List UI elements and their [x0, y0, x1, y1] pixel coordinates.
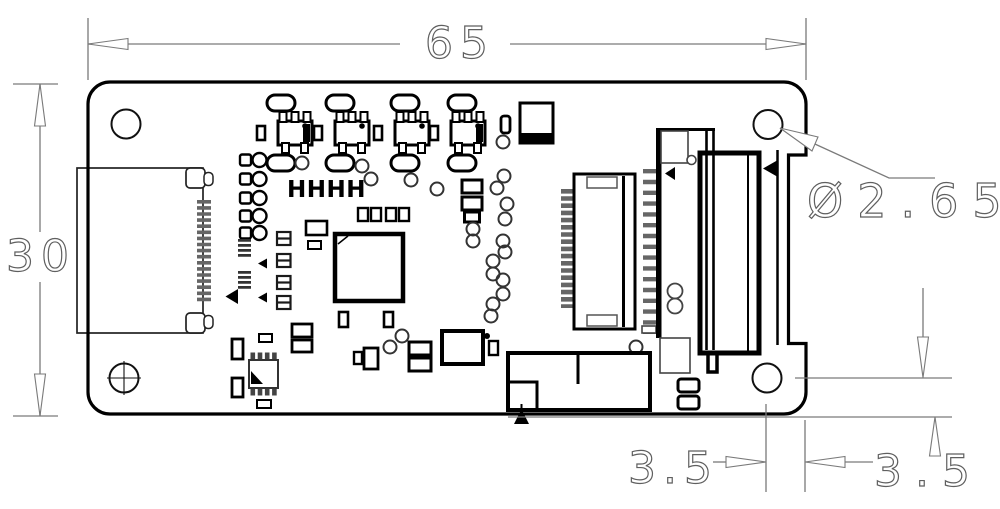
- pcb-dimension-drawing: HHHH: [0, 0, 1000, 509]
- dim-height-value: 30: [6, 231, 76, 282]
- main-ic: [335, 234, 403, 327]
- dim-hole-diameter: Ø2.65: [780, 128, 1000, 228]
- silkscreen-text: HHHH: [287, 177, 366, 203]
- led-column: [240, 153, 267, 240]
- vertical-fpc-connector: [642, 128, 715, 373]
- ffc-connector: [568, 174, 635, 329]
- dim-hole-diameter-value: Ø2.65: [807, 174, 1000, 228]
- mounting-hole-top-right: [754, 110, 783, 139]
- dim-width-value: 65: [425, 18, 495, 69]
- mounting-hole-bottom-right: [753, 364, 782, 393]
- mounting-hole-top-left: [112, 110, 141, 139]
- dim-board-height: 30: [6, 84, 76, 416]
- mounting-hole-bottom-left: [107, 361, 141, 395]
- capacitor-column: [277, 232, 291, 309]
- card-edge-connector: [700, 150, 778, 372]
- soic8-ic: [232, 334, 278, 408]
- sot23-components: [257, 112, 485, 153]
- dim-board-width: 65: [88, 18, 806, 80]
- crystal-cluster: [354, 331, 498, 371]
- drawing-svg: HHHH: [0, 0, 1000, 509]
- dim-offset-x-value: 3.5: [628, 443, 719, 494]
- dim-offset-y-value: 3.5: [874, 446, 983, 497]
- left-edge-connector: [77, 168, 213, 333]
